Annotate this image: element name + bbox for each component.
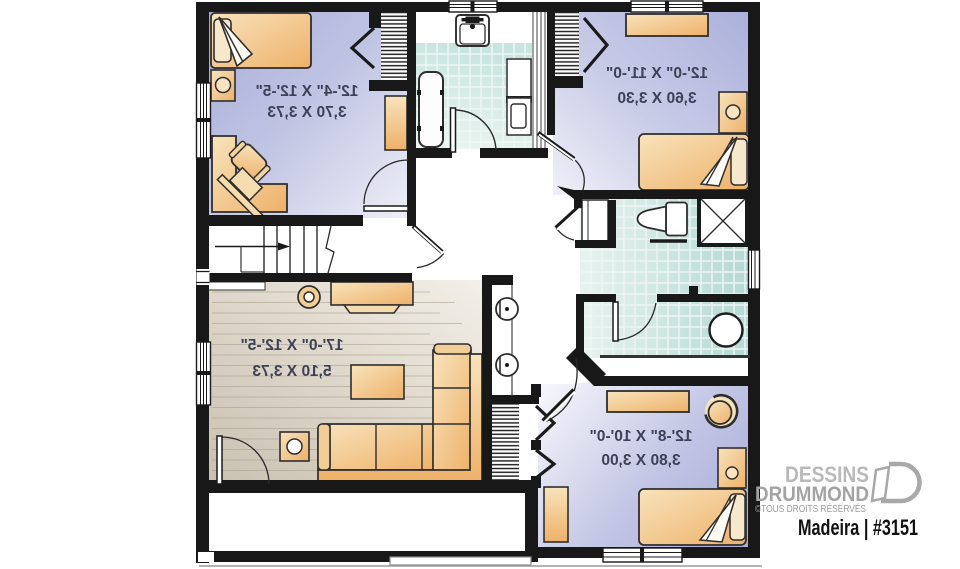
svg-text:12'-0" X 11'-0": 12'-0" X 11'-0" xyxy=(606,65,708,82)
svg-text:©TOUS DROITS RÉSERVÉS: ©TOUS DROITS RÉSERVÉS xyxy=(755,502,866,515)
svg-text:3,60 X 3,30: 3,60 X 3,30 xyxy=(617,90,696,107)
svg-text:3,80 X 3,00: 3,80 X 3,00 xyxy=(601,452,680,469)
svg-text:Madeira | #3151: Madeira | #3151 xyxy=(798,515,918,540)
svg-text:5,10 X 3,73: 5,10 X 3,73 xyxy=(252,363,332,380)
svg-text:17'-0" X 12'-5": 17'-0" X 12'-5" xyxy=(240,337,343,354)
svg-text:12'-4" X 12'-5": 12'-4" X 12'-5" xyxy=(255,83,358,100)
svg-text:3,70 X 3,73: 3,70 X 3,73 xyxy=(267,104,347,121)
svg-text:12'-8" X 10'-0": 12'-8" X 10'-0" xyxy=(589,428,692,445)
svg-text:DRUMMOND: DRUMMOND xyxy=(755,483,869,506)
